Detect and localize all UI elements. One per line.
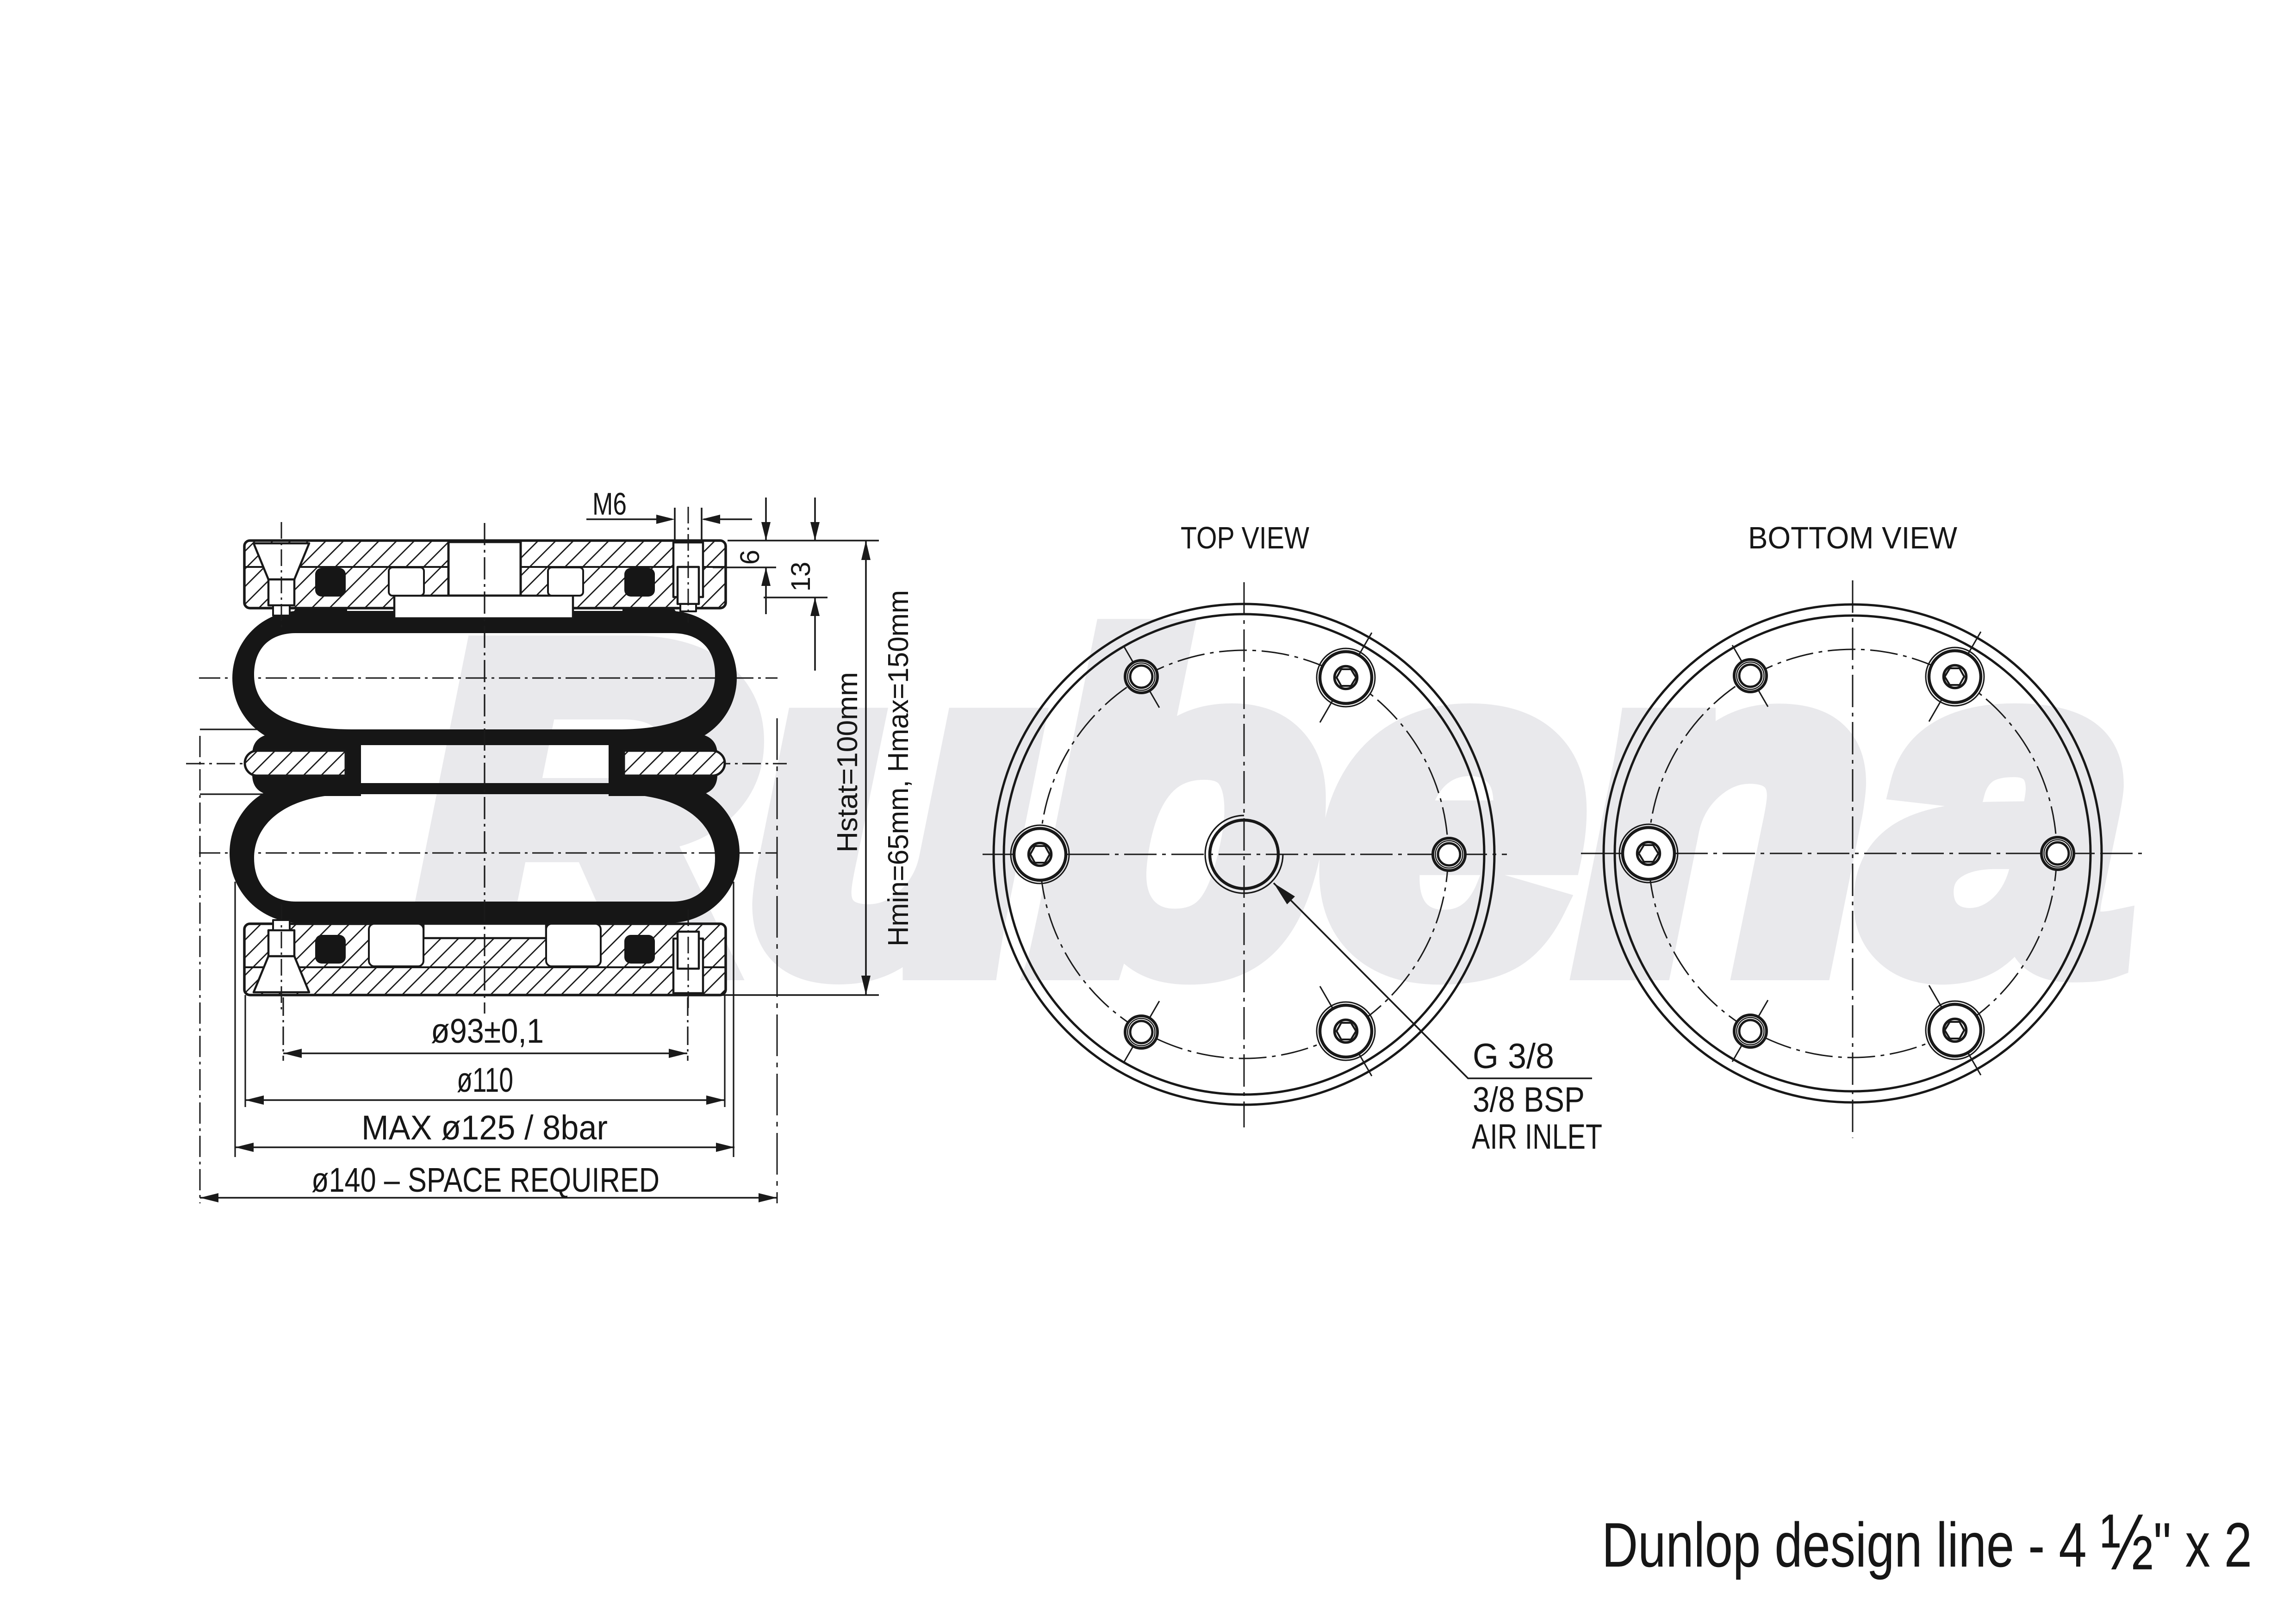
svg-text:MAX ø125 / 8bar: MAX ø125 / 8bar xyxy=(361,1108,608,1147)
svg-text:3/8 BSP: 3/8 BSP xyxy=(1473,1080,1585,1120)
svg-text:ø110: ø110 xyxy=(457,1061,513,1099)
svg-text:TOP VIEW: TOP VIEW xyxy=(1181,521,1310,555)
svg-text:13: 13 xyxy=(786,562,816,592)
svg-text:AIR INLET: AIR INLET xyxy=(1472,1117,1602,1157)
svg-text:G 3/8: G 3/8 xyxy=(1473,1037,1554,1076)
svg-text:Hstat=100mm: Hstat=100mm xyxy=(832,672,864,852)
svg-text:Dunlop design line - 4 ½" x 2: Dunlop design line - 4 ½" x 2 xyxy=(1602,1498,2252,1587)
svg-text:M6: M6 xyxy=(592,486,627,522)
svg-text:ø140 – SPACE REQUIRED: ø140 – SPACE REQUIRED xyxy=(311,1161,660,1199)
svg-text:6: 6 xyxy=(735,550,765,565)
svg-text:ø93±0,1: ø93±0,1 xyxy=(431,1012,544,1050)
svg-text:Hmin=65mm, Hmax=150mm: Hmin=65mm, Hmax=150mm xyxy=(883,590,915,946)
svg-text:BOTTOM VIEW: BOTTOM VIEW xyxy=(1748,521,1958,555)
